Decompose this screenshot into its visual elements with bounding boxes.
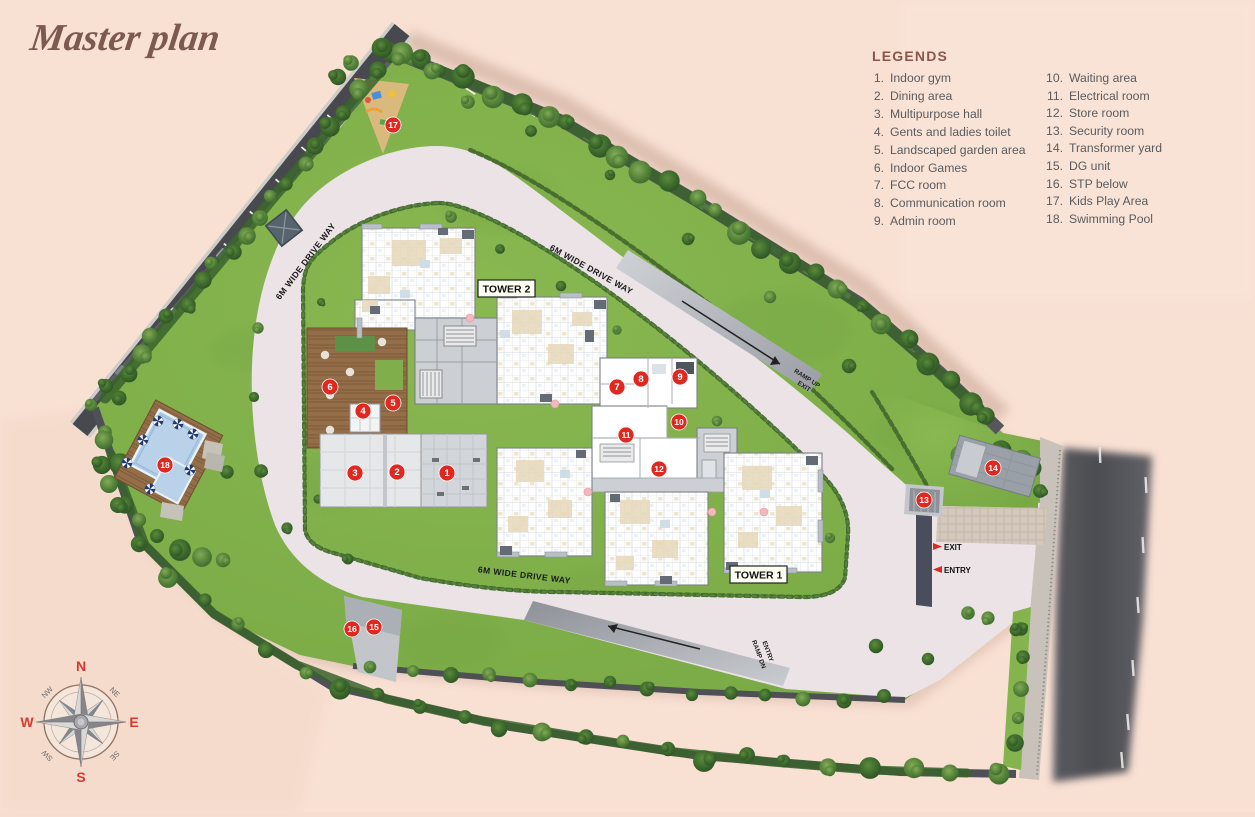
- svg-text:Multipurpose hall: Multipurpose hall: [890, 107, 982, 121]
- svg-text:15.: 15.: [1046, 159, 1063, 173]
- svg-text:4: 4: [360, 406, 366, 417]
- svg-text:11.: 11.: [1047, 89, 1063, 103]
- svg-text:8.: 8.: [874, 196, 884, 210]
- svg-text:Communication room: Communication room: [890, 196, 1006, 210]
- svg-text:Indoor gym: Indoor gym: [890, 71, 951, 85]
- svg-text:18: 18: [160, 460, 170, 470]
- svg-text:LEGENDS: LEGENDS: [872, 48, 948, 64]
- svg-text:3: 3: [352, 468, 357, 479]
- svg-text:Gents and ladies toilet: Gents and ladies toilet: [890, 125, 1011, 139]
- svg-text:Landscaped garden area: Landscaped garden area: [890, 143, 1026, 157]
- svg-text:2: 2: [394, 467, 399, 478]
- svg-text:11: 11: [621, 430, 630, 440]
- svg-text:12.: 12.: [1046, 106, 1063, 120]
- svg-text:4.: 4.: [874, 125, 884, 139]
- svg-text:10: 10: [674, 417, 684, 427]
- svg-text:12: 12: [654, 464, 664, 474]
- svg-text:Waiting area: Waiting area: [1069, 71, 1137, 85]
- svg-text:TOWER 2: TOWER 2: [483, 284, 531, 296]
- svg-text:13: 13: [919, 495, 929, 505]
- svg-text:17.: 17.: [1046, 194, 1063, 208]
- svg-text:6: 6: [327, 382, 332, 393]
- svg-text:5: 5: [390, 398, 396, 409]
- svg-text:Master plan: Master plan: [27, 17, 223, 59]
- svg-text:Admin room: Admin room: [890, 214, 956, 228]
- svg-text:DG unit: DG unit: [1069, 159, 1111, 173]
- svg-text:14.: 14.: [1046, 141, 1063, 155]
- svg-text:15: 15: [369, 622, 379, 632]
- svg-text:Store room: Store room: [1069, 106, 1129, 120]
- svg-text:14: 14: [988, 463, 998, 473]
- svg-text:7: 7: [614, 382, 619, 393]
- svg-text:Indoor Games: Indoor Games: [890, 161, 967, 175]
- svg-text:Swimming Pool: Swimming Pool: [1069, 212, 1153, 226]
- svg-text:TOWER 1: TOWER 1: [735, 570, 783, 582]
- svg-text:Kids Play Area: Kids Play Area: [1069, 194, 1148, 208]
- svg-text:10.: 10.: [1046, 71, 1063, 85]
- svg-text:1: 1: [444, 468, 450, 479]
- svg-text:E: E: [129, 714, 138, 730]
- svg-text:13.: 13.: [1046, 124, 1063, 138]
- svg-text:18.: 18.: [1046, 212, 1063, 226]
- svg-text:17: 17: [388, 120, 398, 130]
- svg-text:S: S: [76, 769, 85, 785]
- svg-text:W: W: [20, 714, 34, 730]
- svg-text:16.: 16.: [1046, 177, 1063, 191]
- svg-text:6.: 6.: [874, 161, 884, 175]
- svg-text:EXIT: EXIT: [944, 543, 962, 552]
- svg-text:9: 9: [677, 372, 682, 383]
- svg-text:Transformer yard: Transformer yard: [1069, 141, 1162, 155]
- svg-text:2.: 2.: [874, 89, 884, 103]
- svg-text:N: N: [76, 658, 86, 674]
- svg-text:16: 16: [347, 624, 357, 634]
- svg-text:Security room: Security room: [1069, 124, 1144, 138]
- svg-text:Dining area: Dining area: [890, 89, 953, 103]
- svg-text:7.: 7.: [874, 178, 884, 192]
- svg-text:STP below: STP below: [1069, 177, 1128, 191]
- svg-text:Electrical room: Electrical room: [1069, 89, 1150, 103]
- svg-text:3.: 3.: [874, 107, 884, 121]
- svg-text:ENTRY: ENTRY: [944, 566, 971, 575]
- svg-text:1.: 1.: [874, 71, 884, 85]
- svg-text:5.: 5.: [874, 143, 884, 157]
- svg-text:FCC room: FCC room: [890, 178, 946, 192]
- svg-text:9.: 9.: [874, 214, 884, 228]
- svg-text:8: 8: [638, 374, 643, 385]
